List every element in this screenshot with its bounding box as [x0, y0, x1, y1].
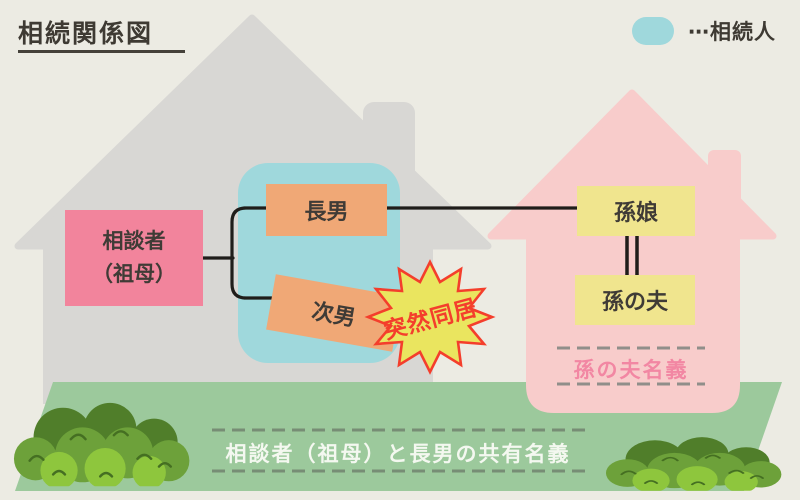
heir-swatch	[632, 17, 674, 45]
title-underline	[18, 50, 185, 53]
eldest-son-box: 長男	[266, 184, 387, 236]
right-house-ownership-label: 孫の夫名義	[541, 354, 721, 384]
heir-legend: ⋯相続人	[632, 16, 776, 46]
left-house-ownership-label: 相談者（祖母）と長男の共有名義	[148, 438, 648, 468]
page-title: 相続関係図	[18, 14, 153, 50]
heir-legend-label: ⋯相続人	[688, 16, 776, 46]
inheritance-diagram: 相続関係図 ⋯相続人 相談者 （祖母） 長男 次男 孫娘 孫の夫 相談者（祖母）…	[0, 0, 800, 500]
granddaughter-box: 孫娘	[577, 186, 695, 236]
consultant-box: 相談者 （祖母）	[65, 210, 203, 306]
granddaughter-husband-box: 孫の夫	[575, 275, 695, 325]
